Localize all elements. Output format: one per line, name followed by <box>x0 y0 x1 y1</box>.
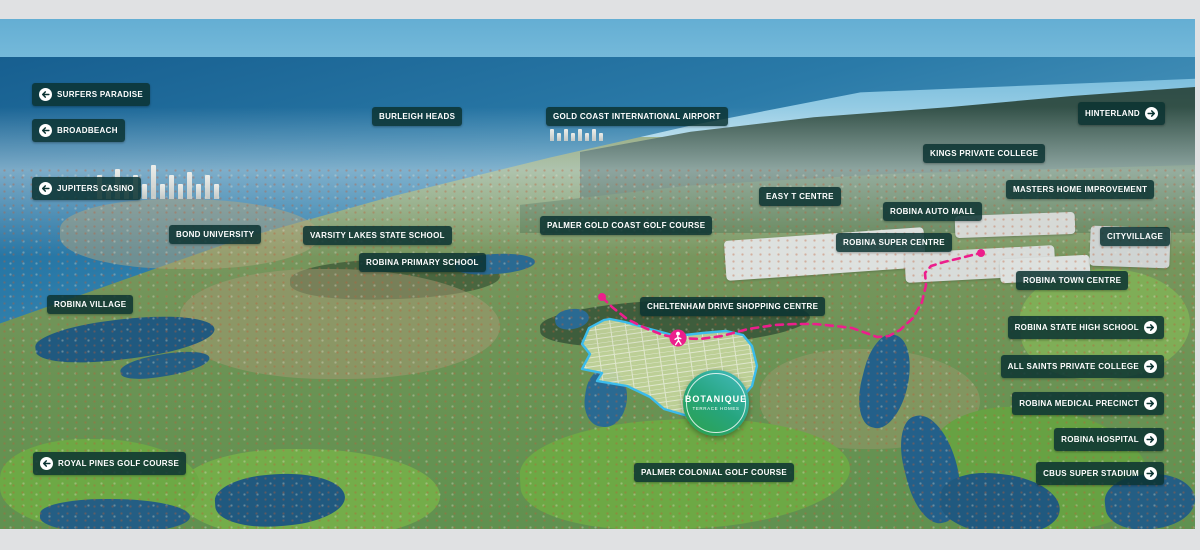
map-label-robina-medical-precinct[interactable]: ROBINA MEDICAL PRECINCT <box>1012 392 1164 415</box>
left-arrow-icon <box>40 457 53 470</box>
map-label-text: CITYVILLAGE <box>1107 232 1163 241</box>
right-arrow-icon <box>1145 107 1158 120</box>
map-label-cityvillage: CITYVILLAGE <box>1100 227 1170 246</box>
right-frame-bar <box>1195 0 1200 550</box>
map-label-text: KINGS PRIVATE COLLEGE <box>930 149 1038 158</box>
right-arrow-icon <box>1144 433 1157 446</box>
map-label-varsity-lakes-state-school: VARSITY LAKES STATE SCHOOL <box>303 226 452 245</box>
right-arrow-icon <box>1144 321 1157 334</box>
map-label-text: ROBINA SUPER CENTRE <box>843 238 945 247</box>
right-arrow-icon <box>1144 467 1157 480</box>
map-label-text: ROBINA MEDICAL PRECINCT <box>1019 399 1139 408</box>
map-label-cheltenham-drive-shopping-centre: CHELTENHAM DRIVE SHOPPING CENTRE <box>640 297 825 316</box>
map-label-robina-state-high-school[interactable]: ROBINA STATE HIGH SCHOOL <box>1008 316 1164 339</box>
map-label-palmer-colonial-golf-course: PALMER COLONIAL GOLF COURSE <box>634 463 794 482</box>
map-label-palmer-gold-coast-golf-course: PALMER GOLD COAST GOLF COURSE <box>540 216 712 235</box>
map-label-text: ROYAL PINES GOLF COURSE <box>58 459 179 468</box>
map-label-text: HINTERLAND <box>1085 109 1140 118</box>
botanique-logo-name: BOTANIQUE <box>685 395 747 405</box>
map-label-robina-village: ROBINA VILLAGE <box>47 295 133 314</box>
botanique-logo-badge: BOTANIQUE TERRACE HOMES <box>683 370 749 436</box>
map-label-text: ROBINA AUTO MALL <box>890 207 975 216</box>
map-label-text: ROBINA PRIMARY SCHOOL <box>366 258 479 267</box>
map-label-bond-university: BOND UNIVERSITY <box>169 225 261 244</box>
map-label-text: PALMER GOLD COAST GOLF COURSE <box>547 221 705 230</box>
map-label-masters-home-improvement: MASTERS HOME IMPROVEMENT <box>1006 180 1154 199</box>
map-label-text: BROADBEACH <box>57 126 118 135</box>
map-label-easy-t-centre: EASY T CENTRE <box>759 187 841 206</box>
map-label-robina-primary-school: ROBINA PRIMARY SCHOOL <box>359 253 486 272</box>
map-label-kings-private-college: KINGS PRIVATE COLLEGE <box>923 144 1045 163</box>
right-arrow-icon <box>1144 360 1157 373</box>
map-label-text: ROBINA STATE HIGH SCHOOL <box>1015 323 1139 332</box>
left-arrow-icon <box>39 88 52 101</box>
map-label-text: BOND UNIVERSITY <box>176 230 254 239</box>
map-label-robina-super-centre: ROBINA SUPER CENTRE <box>836 233 952 252</box>
location-map-canvas: SURFERS PARADISEBROADBEACHJUPITERS CASIN… <box>0 0 1200 550</box>
map-label-text: ALL SAINTS PRIVATE COLLEGE <box>1008 362 1139 371</box>
map-label-cbus-super-stadium[interactable]: CBUS SUPER STADIUM <box>1036 462 1164 485</box>
top-frame-bar <box>0 0 1200 19</box>
left-arrow-icon <box>39 124 52 137</box>
map-label-robina-town-centre: ROBINA TOWN CENTRE <box>1016 271 1128 290</box>
botanique-logo-tagline: TERRACE HOMES <box>692 406 739 411</box>
map-label-text: CHELTENHAM DRIVE SHOPPING CENTRE <box>647 302 818 311</box>
map-label-text: ROBINA TOWN CENTRE <box>1023 276 1121 285</box>
map-label-text: JUPITERS CASINO <box>57 184 134 193</box>
map-label-robina-hospital[interactable]: ROBINA HOSPITAL <box>1054 428 1164 451</box>
map-label-broadbeach[interactable]: BROADBEACH <box>32 119 125 142</box>
map-label-text: VARSITY LAKES STATE SCHOOL <box>310 231 445 240</box>
map-label-robina-auto-mall: ROBINA AUTO MALL <box>883 202 982 221</box>
map-label-burleigh-heads: BURLEIGH HEADS <box>372 107 462 126</box>
map-label-royal-pines-golf-course[interactable]: ROYAL PINES GOLF COURSE <box>33 452 186 475</box>
right-arrow-icon <box>1144 397 1157 410</box>
map-labels-layer: SURFERS PARADISEBROADBEACHJUPITERS CASIN… <box>0 0 1200 550</box>
map-label-gold-coast-international-airport: GOLD COAST INTERNATIONAL AIRPORT <box>546 107 728 126</box>
map-label-text: BURLEIGH HEADS <box>379 112 455 121</box>
map-label-text: GOLD COAST INTERNATIONAL AIRPORT <box>553 112 721 121</box>
map-label-text: SURFERS PARADISE <box>57 90 143 99</box>
map-label-text: CBUS SUPER STADIUM <box>1043 469 1139 478</box>
map-label-surfers-paradise[interactable]: SURFERS PARADISE <box>32 83 150 106</box>
map-label-text: ROBINA VILLAGE <box>54 300 126 309</box>
map-label-text: ROBINA HOSPITAL <box>1061 435 1139 444</box>
map-label-hinterland[interactable]: HINTERLAND <box>1078 102 1165 125</box>
bottom-frame-bar <box>0 529 1200 550</box>
map-label-text: MASTERS HOME IMPROVEMENT <box>1013 185 1147 194</box>
map-label-text: PALMER COLONIAL GOLF COURSE <box>641 468 787 477</box>
map-label-all-saints-private-college[interactable]: ALL SAINTS PRIVATE COLLEGE <box>1001 355 1164 378</box>
map-label-text: EASY T CENTRE <box>766 192 834 201</box>
left-arrow-icon <box>39 182 52 195</box>
map-label-jupiters-casino[interactable]: JUPITERS CASINO <box>32 177 141 200</box>
